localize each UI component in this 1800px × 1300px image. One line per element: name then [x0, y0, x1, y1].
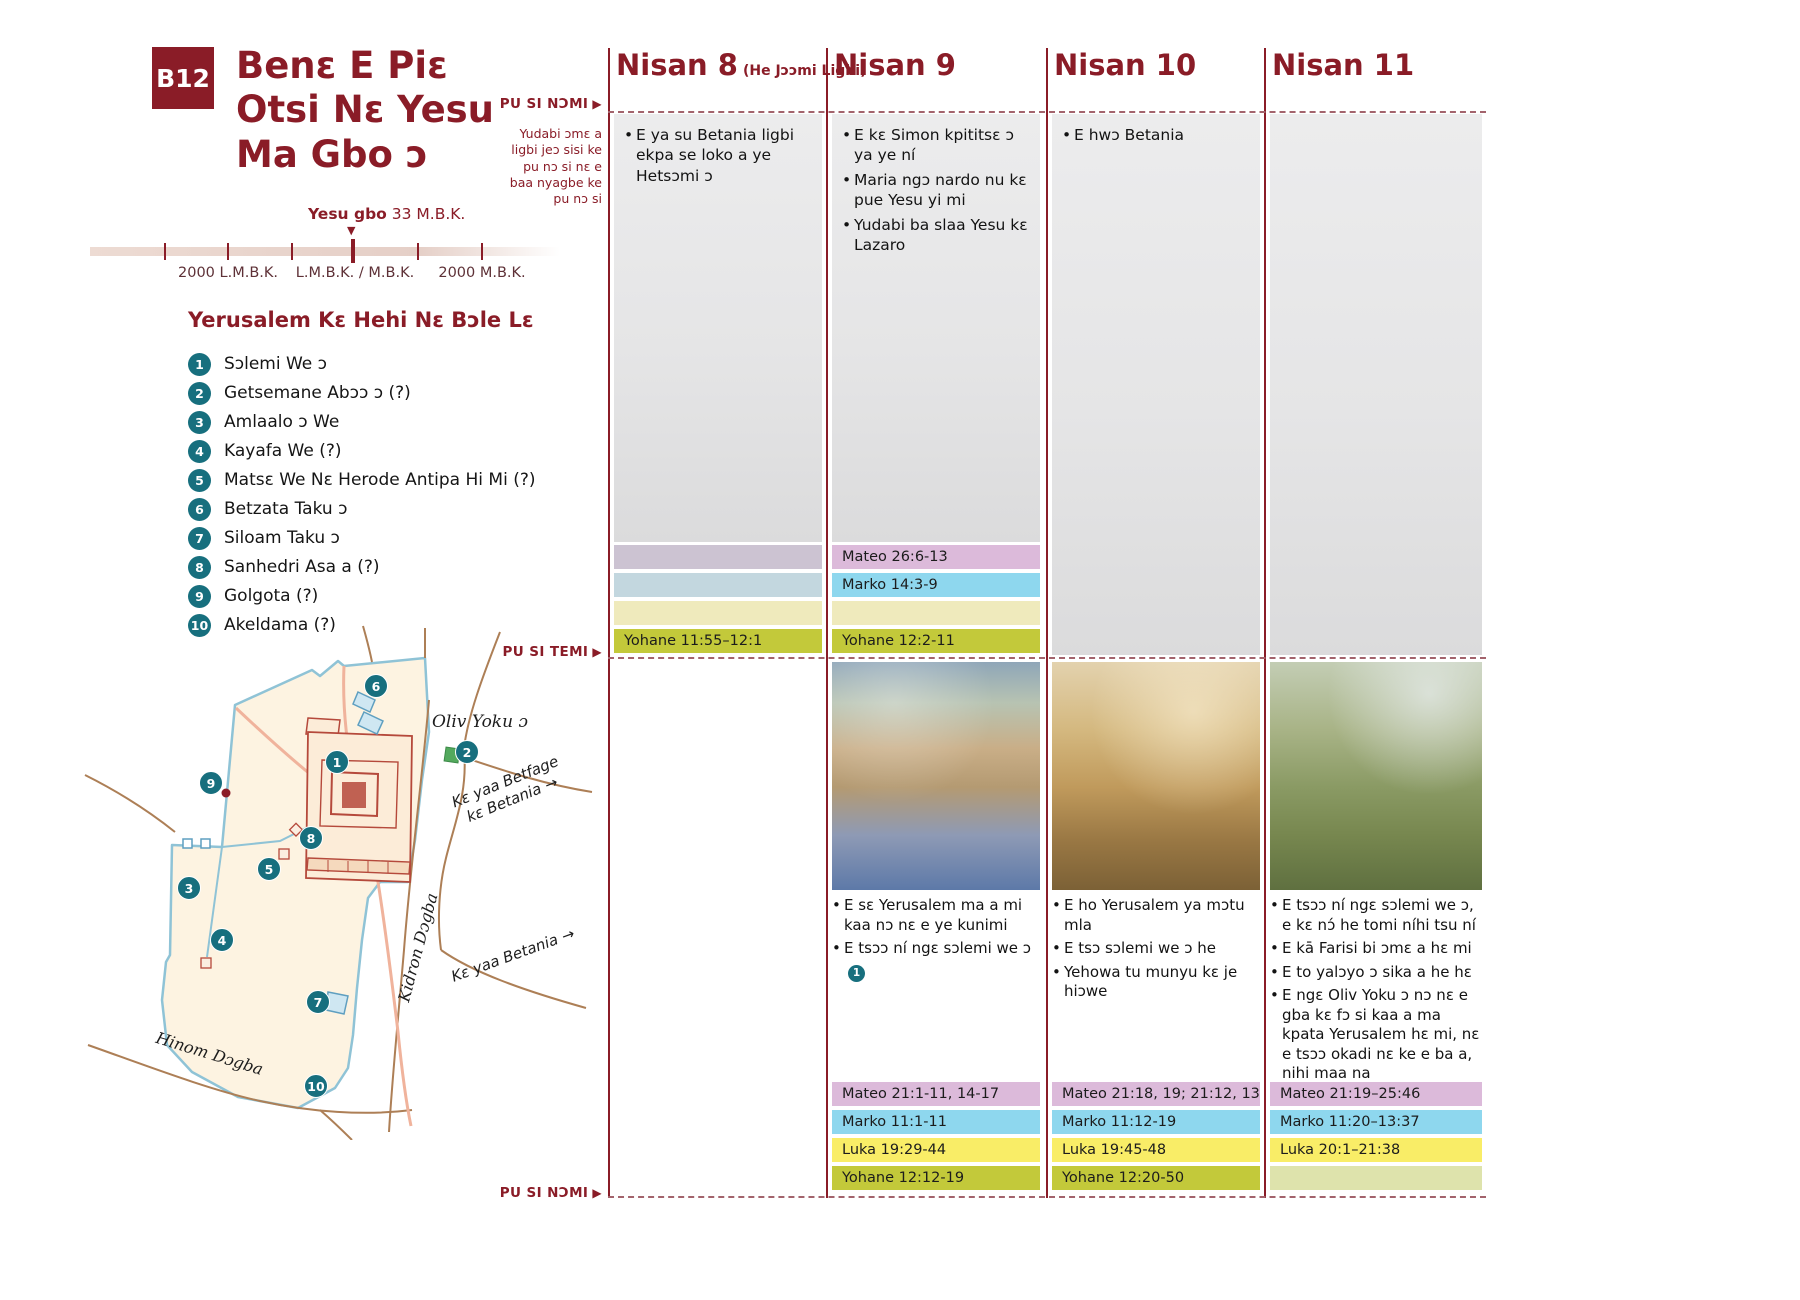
nisan8-events-panel: E ya su Betania ligbi ekpa se loko a ye … — [614, 114, 822, 542]
gate-icon — [201, 839, 210, 848]
map-marker-10: 10 — [304, 1074, 328, 1098]
scripture-band-yohane: Yohane 11:55–12:1 — [614, 629, 822, 653]
event-bullet: E kɛ Simon kpititsɛ ɔ ya ye ní — [842, 125, 1032, 166]
sunset-dashed-line — [608, 111, 1486, 113]
event-bullet: E tsɔɔ ní ngɛ sɔlemi we ɔ, e kɛ nɔ́ he t… — [1270, 896, 1482, 935]
scripture-band-mateo: Mateo 21:1-11, 14-17 — [832, 1082, 1040, 1106]
scripture-band-yohane — [1270, 1166, 1482, 1190]
event-bullet: E ya su Betania ligbi ekpa se loko a ye … — [624, 125, 814, 186]
sunset-dashed-line — [608, 1196, 1486, 1198]
scripture-band-yohane: Yohane 12:12-19 — [832, 1166, 1040, 1190]
legend-title: Yerusalem Kɛ Hehi Nɛ Bɔle Lɛ — [188, 308, 534, 332]
map-marker-7: 7 — [306, 990, 330, 1014]
illustration-triumphal-entry — [832, 662, 1040, 890]
timeline-tick-label: 2000 M.B.K. — [438, 265, 525, 281]
sunset-label-text: PU SI NƆMI — [500, 1185, 589, 1201]
legend-marker-1: 1 — [188, 353, 211, 376]
herod-palace-site — [279, 849, 289, 859]
legend-marker-5: 5 — [188, 469, 211, 492]
timeline-tick — [227, 243, 229, 260]
jerusalem-map-graphic — [80, 620, 610, 1140]
event-bullet: Yehowa tu munyu kɛ je hiɔwe — [1052, 963, 1260, 1002]
nisan10-events-bottom: E ho Yerusalem ya mɔtu mla E tsɔ sɔlemi … — [1052, 896, 1260, 1006]
legend-item: 8Sanhedri Asa a (?) — [188, 555, 380, 579]
event-bullet: E hwɔ Betania — [1062, 125, 1252, 145]
map-marker-2: 2 — [455, 740, 479, 764]
sunset-label-text: PU SI NƆMI — [500, 96, 589, 112]
column-header-text: Nisan 9 — [834, 48, 956, 82]
nisan11-events-panel — [1270, 114, 1482, 655]
event-bullet: Yudabi ba slaa Yesu kɛ Lazaro — [842, 215, 1032, 256]
column-header-text: Nisan 8 — [616, 48, 738, 82]
timeline-tick-label: 2000 L.M.B.K. — [178, 265, 278, 281]
legend-label: Sanhedri Asa a (?) — [224, 557, 380, 577]
scripture-band-mateo: Mateo 21:19–25:46 — [1270, 1082, 1482, 1106]
map-marker-8: 8 — [299, 826, 323, 850]
scripture-band-luka: Luka 19:29-44 — [832, 1138, 1040, 1162]
nisan10-events-panel: E hwɔ Betania — [1052, 114, 1260, 655]
legend-item: 6Betzata Taku ɔ — [188, 497, 347, 521]
timeline-tick-event — [351, 239, 355, 263]
legend-label: Amlaalo ɔ We — [224, 412, 339, 432]
map-marker-9: 9 — [199, 771, 223, 795]
scripture-band-marko: Marko 11:20–13:37 — [1270, 1110, 1482, 1134]
legend-marker-6: 6 — [188, 498, 211, 521]
timeline-tick-label: L.M.B.K. / M.B.K. — [296, 265, 414, 281]
legend-label: Golgota (?) — [224, 586, 318, 606]
event-bullet: E ho Yerusalem ya mɔtu mla — [1052, 896, 1260, 935]
legend-label: Betzata Taku ɔ — [224, 499, 347, 519]
legend-label: Kayafa We (?) — [224, 441, 342, 461]
column-header-nisan10: Nisan 10 — [1054, 48, 1196, 82]
event-text: E tsɔɔ ní ngɛ sɔlemi we ɔ — [844, 939, 1031, 957]
timeline-event-bold: Yesu gbo — [308, 205, 387, 223]
scripture-band-mateo — [614, 545, 822, 569]
map-marker-1: 1 — [325, 750, 349, 774]
event-bullet: E ngɛ Oliv Yoku ɔ nɔ nɛ e gba kɛ fɔ si k… — [1270, 986, 1482, 1084]
right-arrow-icon: → — [542, 773, 560, 794]
column-header-nisan9: Nisan 9 — [834, 48, 956, 82]
scripture-band-yohane: Yohane 12:20-50 — [1052, 1166, 1260, 1190]
legend-item: 5Matsɛ We Nɛ Herode Antipa Hi Mi (?) — [188, 468, 536, 492]
scripture-band-luka: Luka 19:45-48 — [1052, 1138, 1260, 1162]
sunset-label-bottom: PU SI NƆMI▶ — [330, 1185, 602, 1201]
day-reckoning-note: Yudabi ɔmɛ a ligbi jeɔ sisi ke pu nɔ si … — [380, 126, 602, 207]
right-triangle-icon: ▶ — [592, 1186, 602, 1200]
illustration-temple-cleansing — [1052, 662, 1260, 890]
legend-marker-8: 8 — [188, 556, 211, 579]
column-header-text: Nisan 10 — [1054, 48, 1196, 82]
scripture-band-luka — [614, 601, 822, 625]
timeline-event-year: 33 M.B.K. — [387, 205, 466, 223]
scripture-band-marko: Marko 14:3-9 — [832, 573, 1040, 597]
mount-of-olives-label: Oliv Yoku ɔ — [432, 712, 528, 732]
legend-marker-7: 7 — [188, 527, 211, 550]
legend-marker-3: 3 — [188, 411, 211, 434]
timeline-bar — [90, 247, 560, 256]
sunrise-dashed-line — [608, 657, 1486, 659]
legend-item: 3Amlaalo ɔ We — [188, 410, 339, 434]
appendix-badge: B12 — [152, 47, 214, 109]
legend-item: 2Getsemane Abɔɔ ɔ (?) — [188, 381, 411, 405]
golgotha-site — [222, 789, 231, 798]
timeline-down-arrow-icon: ▼ — [347, 224, 355, 237]
scripture-band-mateo: Mateo 26:6-13 — [832, 545, 1040, 569]
timeline-tick — [481, 243, 483, 260]
nisan9-events-bottom: E sɛ Yerusalem ma a mi kaa nɔ nɛ e ye ku… — [832, 896, 1040, 986]
illustration-teaching-olivet — [1270, 662, 1482, 890]
right-triangle-icon: ▶ — [592, 97, 602, 111]
legend-label: Sɔlemi We ɔ — [224, 354, 327, 374]
scripture-band-marko: Marko 11:12-19 — [1052, 1110, 1260, 1134]
scripture-band-yohane: Yohane 12:2-11 — [832, 629, 1040, 653]
legend-item: 7Siloam Taku ɔ — [188, 526, 340, 550]
chart-page: { "icons": { "right_triangle": "▶", "dow… — [0, 0, 1800, 1300]
map-reference-badge: 1 — [848, 965, 865, 982]
legend-marker-4: 4 — [188, 440, 211, 463]
scripture-band-luka — [832, 601, 1040, 625]
timeline-tick — [164, 243, 166, 260]
caiaphas-house-site — [201, 958, 211, 968]
event-bullet: E sɛ Yerusalem ma a mi kaa nɔ nɛ e ye ku… — [832, 896, 1040, 935]
timeline-event-label: Yesu gbo 33 M.B.K. — [308, 205, 465, 223]
legend-label: Getsemane Abɔɔ ɔ (?) — [224, 383, 411, 403]
map-marker-4: 4 — [210, 928, 234, 952]
gate-icon — [183, 839, 192, 848]
column-divider — [1046, 48, 1048, 1198]
event-bullet: Maria ngɔ nardo nu kɛ pue Yesu yi mi — [842, 170, 1032, 211]
legend-marker-9: 9 — [188, 585, 211, 608]
event-bullet: E tsɔɔ ní ngɛ sɔlemi we ɔ1 — [832, 939, 1040, 982]
map-marker-5: 5 — [257, 857, 281, 881]
nisan11-events-bottom: E tsɔɔ ní ngɛ sɔlemi we ɔ, e kɛ nɔ́ he t… — [1270, 896, 1482, 1088]
scripture-band-mateo: Mateo 21:18, 19; 21:12, 13 — [1052, 1082, 1260, 1106]
timeline-tick — [417, 243, 419, 260]
legend-item: 1Sɔlemi We ɔ — [188, 352, 327, 376]
legend-item: 9Golgota (?) — [188, 584, 318, 608]
column-header-nisan11: Nisan 11 — [1272, 48, 1414, 82]
timeline-tick — [291, 243, 293, 260]
legend-label: Matsɛ We Nɛ Herode Antipa Hi Mi (?) — [224, 470, 536, 490]
event-bullet: E to yalɔyo ɔ sika a he hɛ — [1270, 963, 1482, 983]
nisan9-events-panel: E kɛ Simon kpititsɛ ɔ ya ye ní Maria ngɔ… — [832, 114, 1040, 542]
column-divider — [1264, 48, 1266, 1198]
event-bullet: E kā Farisi bi ɔmɛ a hɛ mi — [1270, 939, 1482, 959]
scripture-band-luka: Luka 20:1–21:38 — [1270, 1138, 1482, 1162]
legend-item: 4Kayafa We (?) — [188, 439, 342, 463]
scripture-band-marko: Marko 11:1-11 — [832, 1110, 1040, 1134]
temple-sanctuary — [342, 782, 366, 808]
legend-marker-2: 2 — [188, 382, 211, 405]
map-marker-6: 6 — [364, 674, 388, 698]
scripture-band-marko — [614, 573, 822, 597]
column-divider — [826, 48, 828, 1198]
column-header-text: Nisan 11 — [1272, 48, 1414, 82]
event-bullet: E tsɔ sɔlemi we ɔ he — [1052, 939, 1260, 959]
legend-label: Siloam Taku ɔ — [224, 528, 340, 548]
map-marker-3: 3 — [177, 876, 201, 900]
column-header-nisan8: Nisan 8(He Jɔɔmi Ligbi) — [616, 48, 866, 82]
sunset-label-top: PU SI NƆMI▶ — [330, 96, 602, 112]
jerusalem-map: Oliv Yoku ɔ Kɛ yaa Betfage kɛ Betania→ K… — [80, 620, 610, 1140]
